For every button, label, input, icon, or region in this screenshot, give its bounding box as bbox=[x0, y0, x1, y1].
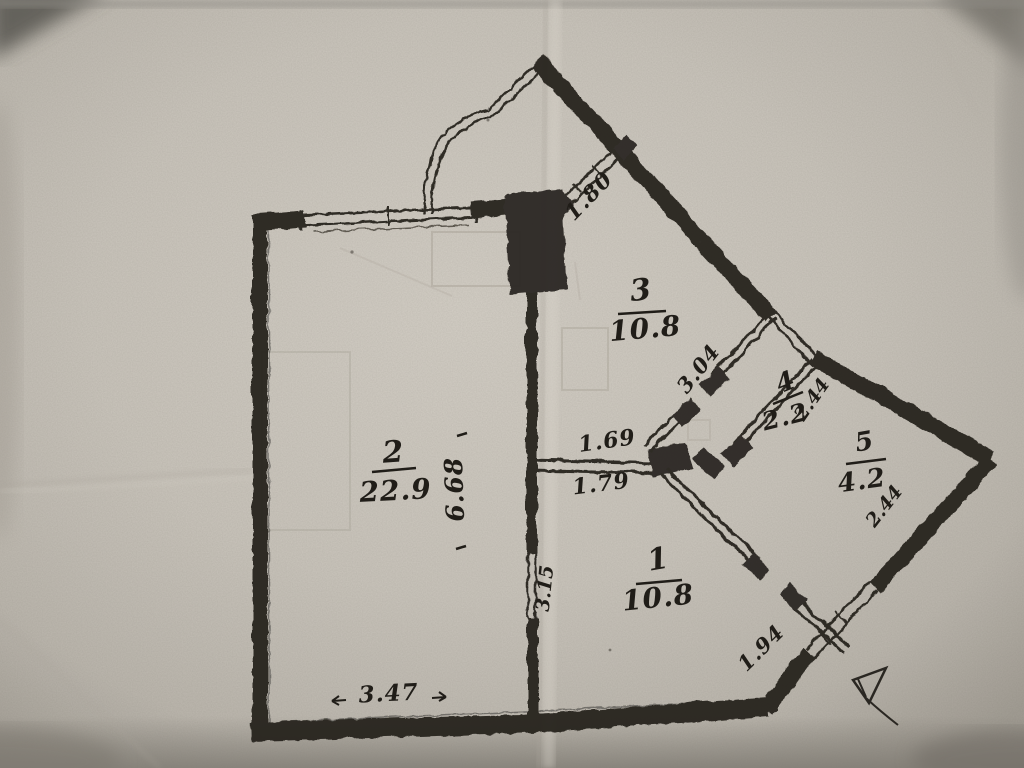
dim-room2-width: 3.47 bbox=[358, 678, 419, 708]
floor-plan-photo: 2 22.9 3 10.8 1 10.8 4 2.2 5 4.2 1.80 3.… bbox=[0, 0, 1024, 768]
room-2-area: 22.9 bbox=[358, 472, 433, 509]
dim-room2-depth: 6.68 bbox=[439, 456, 470, 522]
room-3-number: 3 bbox=[628, 272, 653, 309]
wall-top-left-block bbox=[252, 218, 304, 222]
room-3-area: 10.8 bbox=[608, 309, 683, 348]
floor-plan-canvas: 2 22.9 3 10.8 1 10.8 4 2.2 5 4.2 1.80 3.… bbox=[0, 0, 1024, 768]
room-2-number: 2 bbox=[380, 434, 405, 471]
